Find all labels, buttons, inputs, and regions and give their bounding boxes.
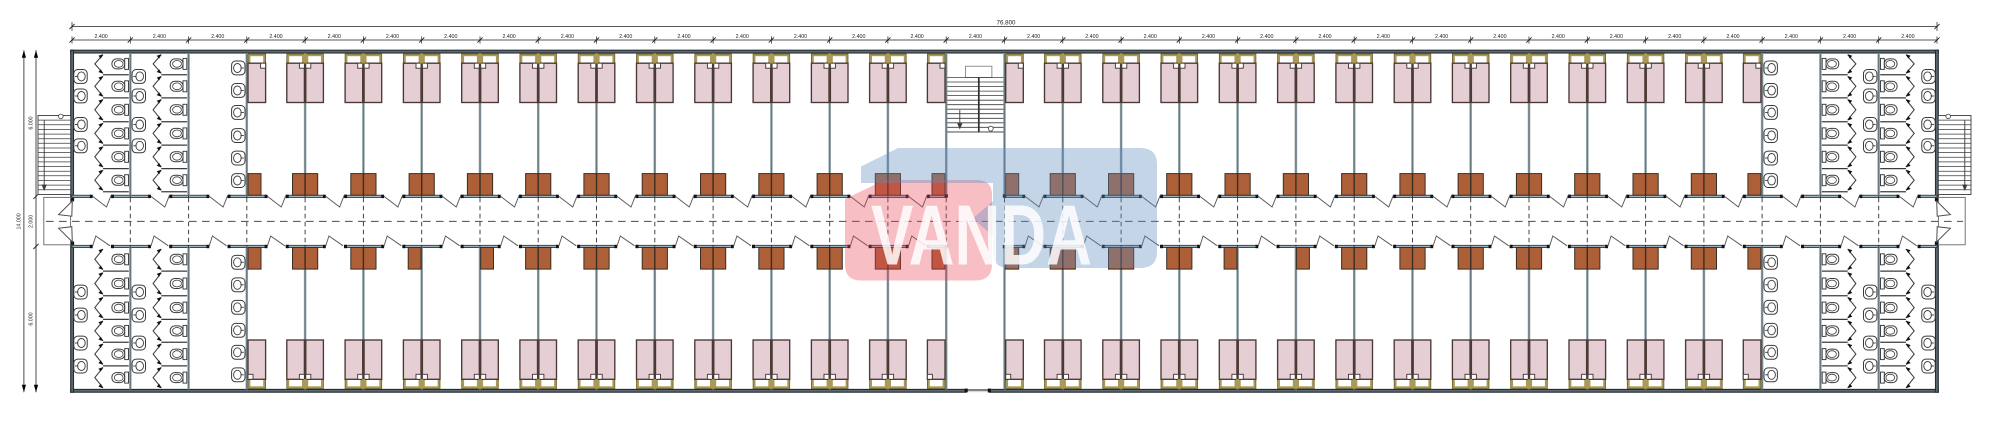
svg-text:2.400: 2.400: [1726, 34, 1739, 40]
svg-text:2.400: 2.400: [1435, 34, 1448, 40]
svg-text:2.400: 2.400: [1668, 34, 1681, 40]
svg-text:2.400: 2.400: [269, 34, 282, 40]
svg-text:14.000: 14.000: [17, 213, 23, 229]
svg-text:6.000: 6.000: [29, 312, 35, 325]
svg-text:VANDA: VANDA: [871, 189, 1092, 284]
svg-text:2.400: 2.400: [211, 34, 224, 40]
svg-text:6.000: 6.000: [29, 116, 35, 129]
svg-text:2.400: 2.400: [94, 34, 107, 40]
svg-text:2.400: 2.400: [561, 34, 574, 40]
svg-text:2.400: 2.400: [910, 34, 923, 40]
svg-text:76.800: 76.800: [997, 20, 1016, 27]
svg-text:2.400: 2.400: [444, 34, 457, 40]
svg-text:2.400: 2.400: [153, 34, 166, 40]
svg-text:2.400: 2.400: [1901, 34, 1914, 40]
svg-text:2.400: 2.400: [1027, 34, 1040, 40]
svg-text:2.400: 2.400: [386, 34, 399, 40]
svg-text:2.400: 2.400: [852, 34, 865, 40]
svg-text:2.400: 2.400: [1785, 34, 1798, 40]
svg-text:2.400: 2.400: [677, 34, 690, 40]
svg-text:2.400: 2.400: [969, 34, 982, 40]
svg-text:2.400: 2.400: [1377, 34, 1390, 40]
svg-text:2.400: 2.400: [502, 34, 515, 40]
svg-text:2.400: 2.400: [1318, 34, 1331, 40]
svg-text:2.400: 2.400: [619, 34, 632, 40]
svg-text:2.400: 2.400: [1610, 34, 1623, 40]
svg-text:2.400: 2.400: [794, 34, 807, 40]
svg-text:2.400: 2.400: [328, 34, 341, 40]
svg-text:2.400: 2.400: [1260, 34, 1273, 40]
svg-text:2.400: 2.400: [1843, 34, 1856, 40]
svg-text:2.000: 2.000: [29, 215, 35, 228]
svg-text:2.400: 2.400: [1144, 34, 1157, 40]
svg-text:2.400: 2.400: [1552, 34, 1565, 40]
svg-text:2.400: 2.400: [736, 34, 749, 40]
svg-text:2.400: 2.400: [1085, 34, 1098, 40]
svg-text:2.400: 2.400: [1493, 34, 1506, 40]
svg-text:2.400: 2.400: [1202, 34, 1215, 40]
